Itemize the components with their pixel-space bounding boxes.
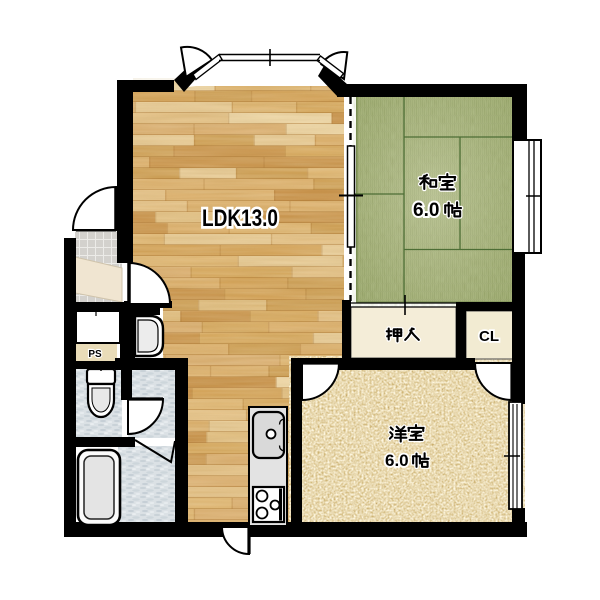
svg-text:6.0: 6.0 — [413, 200, 439, 221]
svg-text:6.0: 6.0 — [385, 451, 409, 470]
svg-text:PS: PS — [88, 349, 102, 360]
svg-text:CL: CL — [479, 328, 499, 345]
svg-text:LDK13.0: LDK13.0 — [202, 205, 278, 232]
